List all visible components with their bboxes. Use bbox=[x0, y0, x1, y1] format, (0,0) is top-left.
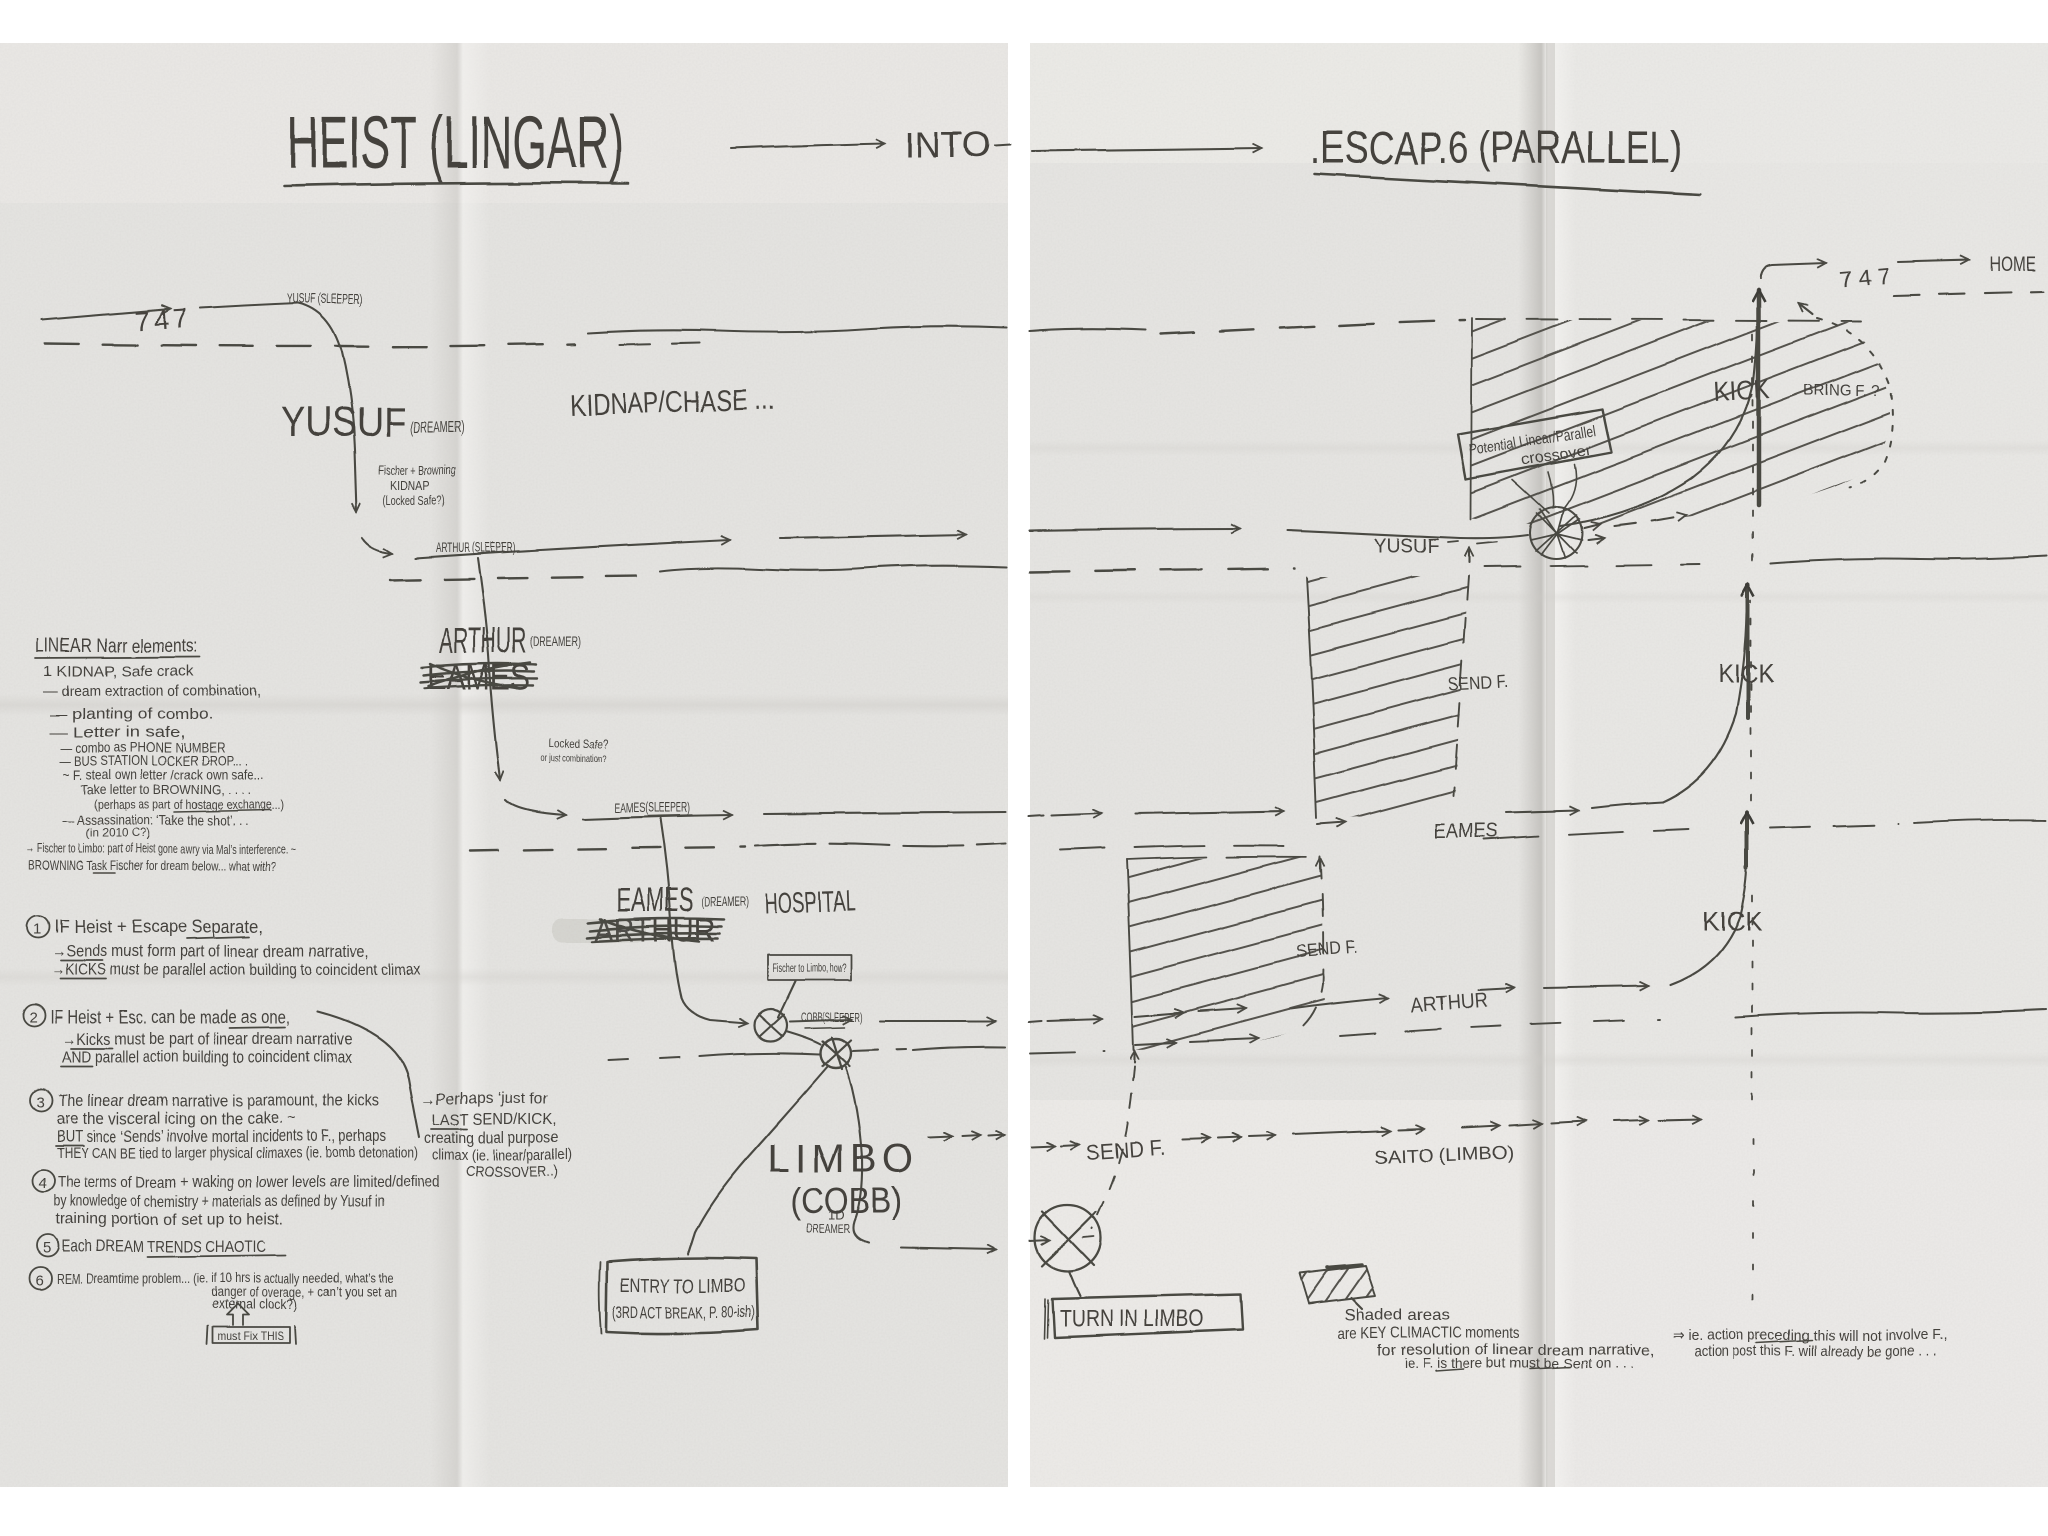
svg-text:(COBB): (COBB) bbox=[790, 1181, 902, 1222]
svg-text:→ Fischer to Limbo: part of He: → Fischer to Limbo: part of Heist gone a… bbox=[25, 841, 296, 856]
svg-text:— dream extraction of combinat: — dream extraction of combination, bbox=[44, 683, 261, 700]
svg-text:1D: 1D bbox=[828, 1208, 845, 1223]
svg-text:Fischer + Browning: Fischer + Browning bbox=[378, 462, 456, 477]
svg-text:Take letter to BROWNING, . . .: Take letter to BROWNING, . . . . bbox=[81, 781, 251, 797]
svg-text:The linear dream narrative is: The linear dream narrative is paramount,… bbox=[59, 1092, 379, 1110]
svg-text:ARTHUR (SLEEPER): ARTHUR (SLEEPER) bbox=[436, 539, 516, 555]
svg-text:2: 2 bbox=[29, 1009, 37, 1026]
svg-text:BUT since ‘Sends’ involve mort: BUT since ‘Sends’ involve mortal inciden… bbox=[57, 1128, 386, 1146]
svg-text:(Locked Safe?): (Locked Safe?) bbox=[383, 492, 445, 507]
svg-text:EAMES(SLEEPER): EAMES(SLEEPER) bbox=[615, 799, 690, 815]
svg-text:Locked Safe?: Locked Safe? bbox=[549, 736, 609, 750]
svg-text:BRING F. ?: BRING F. ? bbox=[1804, 382, 1880, 399]
svg-text:The terms of Dream + waking on: The terms of Dream + waking on lower lev… bbox=[57, 1174, 440, 1191]
svg-text:.ESCAP.6 (PARALLEL): .ESCAP.6 (PARALLEL) bbox=[1310, 122, 1682, 173]
svg-text:ARTHUR: ARTHUR bbox=[439, 620, 527, 661]
svg-text:~ F. steal own letter /crack o: ~ F. steal own letter /crack own safe... bbox=[63, 766, 264, 782]
svg-text:3: 3 bbox=[37, 1094, 45, 1111]
svg-text:Each DREAM TRENDS CHAOTIC: Each DREAM TRENDS CHAOTIC bbox=[61, 1237, 266, 1256]
svg-text:→Perhaps ‘just for: →Perhaps ‘just for bbox=[420, 1091, 549, 1108]
svg-text:(3RD ACT BREAK, P. 80-ish): (3RD ACT BREAK, P. 80-ish) bbox=[612, 1304, 755, 1322]
svg-text:⇒ ie. action preceding this wi: ⇒ ie. action preceding this will not inv… bbox=[1673, 1327, 1947, 1344]
svg-text:747: 747 bbox=[1838, 262, 1896, 293]
svg-text:or just combination?: or just combination? bbox=[541, 752, 607, 764]
svg-text:BROWNING Task Fischer for drea: BROWNING Task Fischer for dream below...… bbox=[28, 858, 276, 873]
svg-text:→Kicks must be part of linear: →Kicks must be part of linear dream narr… bbox=[62, 1030, 352, 1048]
svg-text:REM. Dreamtime problem... (ie.: REM. Dreamtime problem... (ie. if 10 hrs… bbox=[56, 1271, 394, 1286]
svg-text:THEY CAN BE tied to larger phy: THEY CAN BE tied to larger physical clim… bbox=[57, 1146, 418, 1162]
svg-text:DREAMER: DREAMER bbox=[806, 1222, 850, 1236]
svg-text:KICK: KICK bbox=[1718, 659, 1775, 689]
svg-text:HOME: HOME bbox=[1990, 253, 2036, 276]
svg-text:(DREAMER): (DREAMER) bbox=[702, 894, 748, 909]
svg-text:creating dual purpose: creating dual purpose bbox=[424, 1130, 559, 1147]
svg-text:(DREAMER): (DREAMER) bbox=[530, 633, 580, 649]
svg-text:6: 6 bbox=[35, 1272, 43, 1289]
svg-text:→Sends must form part of linea: →Sends must form part of linear dream na… bbox=[51, 943, 369, 961]
svg-text:Shaded areas: Shaded areas bbox=[1345, 1307, 1450, 1324]
svg-text:5: 5 bbox=[42, 1240, 50, 1257]
svg-text:TURN IN LIMBO: TURN IN LIMBO bbox=[1059, 1306, 1204, 1333]
svg-text:YUSUF: YUSUF bbox=[1374, 535, 1440, 558]
svg-text:HOSPITAL: HOSPITAL bbox=[763, 886, 856, 921]
svg-text:AND parallel action building t: AND parallel action building to coincide… bbox=[62, 1048, 353, 1066]
svg-text:are the visceral icing on the: are the visceral icing on the cake. ~ bbox=[57, 1110, 296, 1128]
svg-text:4: 4 bbox=[38, 1175, 46, 1192]
svg-text:are KEY CLIMACTIC moments: are KEY CLIMACTIC moments bbox=[1338, 1325, 1520, 1342]
svg-text:SEND F.: SEND F. bbox=[1448, 671, 1509, 694]
svg-text:LAST SEND/KICK,: LAST SEND/KICK, bbox=[432, 1112, 557, 1129]
svg-text:— planting of combo.: — planting of combo. bbox=[50, 706, 214, 723]
svg-text:LIMBO: LIMBO bbox=[767, 1137, 913, 1181]
svg-text:IF Heist + Escape Separate,: IF Heist + Escape Separate, bbox=[54, 917, 264, 937]
svg-text:1: 1 bbox=[33, 921, 41, 938]
svg-text:INTO: INTO bbox=[905, 126, 991, 165]
svg-text:→KICKS must be parallel action: →KICKS must be parallel action building … bbox=[51, 962, 420, 979]
svg-text:HEIST (LINGAR): HEIST (LINGAR) bbox=[287, 101, 623, 184]
svg-text:Fischer to Limbo, how?: Fischer to Limbo, how? bbox=[772, 963, 847, 975]
svg-text:KICK: KICK bbox=[1713, 374, 1770, 407]
svg-text:COBB(SLEEPER): COBB(SLEEPER) bbox=[801, 1009, 863, 1024]
svg-text:YUSUF: YUSUF bbox=[280, 398, 406, 445]
svg-text:action post this F. will alrea: action post this F. will already be gone… bbox=[1694, 1343, 1936, 1360]
svg-text:1 KIDNAP, Safe crack: 1 KIDNAP, Safe crack bbox=[44, 663, 195, 680]
svg-text:(DREAMER): (DREAMER) bbox=[410, 419, 464, 436]
svg-text:IF Heist + Esc. can be made as: IF Heist + Esc. can be made as one, bbox=[50, 1007, 290, 1027]
svg-text:ENTRY TO LIMBO: ENTRY TO LIMBO bbox=[620, 1276, 745, 1297]
svg-text:(in 2010 C?): (in 2010 C?) bbox=[86, 826, 150, 840]
svg-text:KIDNAP: KIDNAP bbox=[390, 477, 430, 492]
svg-text:KICK: KICK bbox=[1702, 906, 1763, 936]
svg-text:747: 747 bbox=[133, 303, 192, 337]
svg-text:climax (ie. linear/parallel): climax (ie. linear/parallel) bbox=[432, 1147, 572, 1164]
svg-text:ie. F. is there but must be Se: ie. F. is there but must be Sent on . . … bbox=[1404, 1355, 1634, 1371]
svg-text:by knowledge of chemistry + ma: by knowledge of chemistry + materials as… bbox=[53, 1193, 385, 1210]
svg-text:LINEAR Narr elements:: LINEAR Narr elements: bbox=[36, 636, 198, 657]
svg-text:external clock?): external clock?) bbox=[212, 1297, 298, 1312]
svg-text:CROSSOVER..): CROSSOVER..) bbox=[466, 1163, 558, 1180]
svg-text:must Fix THIS: must Fix THIS bbox=[218, 1329, 284, 1343]
svg-text:training portion of set up to: training portion of set up to heist. bbox=[55, 1211, 284, 1228]
